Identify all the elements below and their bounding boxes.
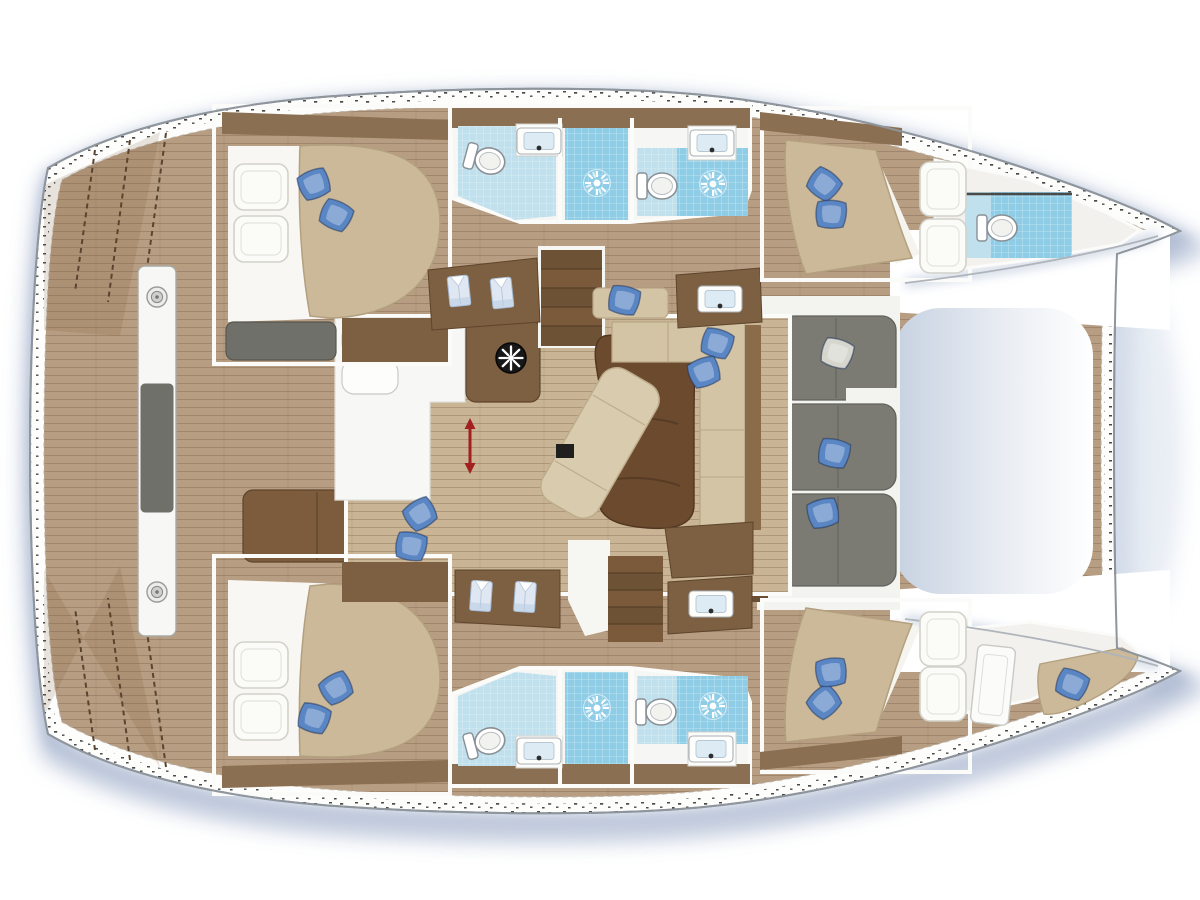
helm-wheel-icon: [496, 343, 526, 373]
sink-icon: [517, 128, 561, 154]
shower-drain-icon: [700, 171, 727, 198]
table-leg-mark: [556, 444, 574, 458]
bed-pillow: [920, 667, 966, 721]
winch-fitting-icon: [147, 582, 167, 602]
arch-cushion: [141, 384, 173, 512]
shower-drain-icon: [584, 695, 611, 722]
bed-pillow: [234, 164, 288, 210]
sink-icon: [689, 736, 733, 762]
blue-pillow: [815, 199, 848, 230]
sink-icon: [689, 591, 733, 617]
shower-drain-icon: [700, 693, 727, 720]
sink-icon: [698, 286, 742, 312]
floorplan-svg: [0, 0, 1200, 900]
cabin-bench: [226, 322, 336, 360]
dresser: [342, 562, 448, 602]
toilet-icon: [977, 215, 1017, 241]
shower-drain-icon: [584, 170, 611, 197]
bed-pillow: [234, 642, 288, 688]
saloon-cabinet: [665, 522, 753, 578]
sink-icon: [690, 130, 734, 156]
bed-pillow: [234, 694, 288, 740]
wardrobe-port: [428, 258, 540, 330]
shirt-wardrobe-icon: [513, 581, 536, 612]
bathrooms-stbd: [450, 668, 750, 786]
stairs-stbd: [608, 556, 663, 642]
bed-pillow: [920, 219, 966, 273]
shirt-wardrobe-icon: [490, 277, 514, 309]
cabin-door: [970, 644, 1016, 726]
winch-fitting-icon: [147, 287, 167, 307]
bed-pillow: [920, 612, 966, 666]
sink-icon: [517, 738, 561, 764]
blue-pillow: [815, 657, 848, 688]
shirt-wardrobe-icon: [447, 275, 471, 307]
toilet-icon: [636, 699, 676, 725]
toilet-icon: [637, 173, 677, 199]
sofa-backrest-trim: [745, 325, 761, 530]
shirt-wardrobe-icon: [469, 580, 492, 611]
bed-pillow: [234, 216, 288, 262]
catamaran-floorplan-image: [0, 0, 1200, 900]
bed-pillow: [920, 162, 966, 216]
trampoline: [893, 308, 1093, 594]
